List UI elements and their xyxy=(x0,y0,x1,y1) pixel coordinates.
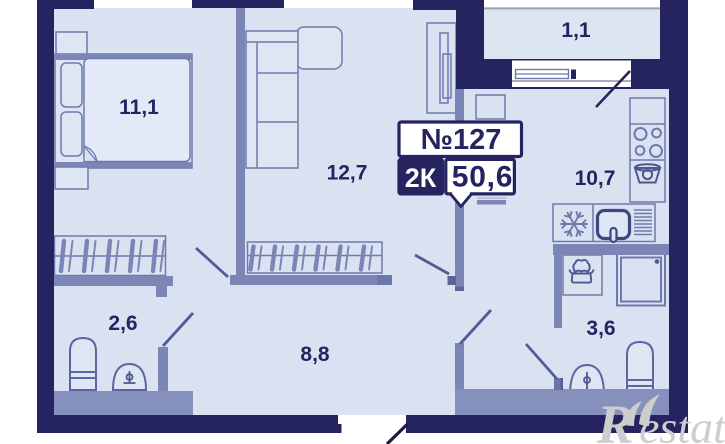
svg-text:12,7: 12,7 xyxy=(327,162,368,185)
svg-text:2К: 2К xyxy=(405,163,437,193)
svg-text:1,1: 1,1 xyxy=(561,19,591,42)
svg-text:10,7: 10,7 xyxy=(575,167,616,190)
svg-text:estate: estate xyxy=(639,402,725,444)
svg-text:2,6: 2,6 xyxy=(108,312,137,335)
svg-text:№127: №127 xyxy=(421,124,502,156)
svg-text:3,6: 3,6 xyxy=(586,317,615,340)
svg-text:50,6: 50,6 xyxy=(452,161,514,194)
svg-text:11,1: 11,1 xyxy=(119,96,159,119)
svg-text:8,8: 8,8 xyxy=(300,343,330,366)
